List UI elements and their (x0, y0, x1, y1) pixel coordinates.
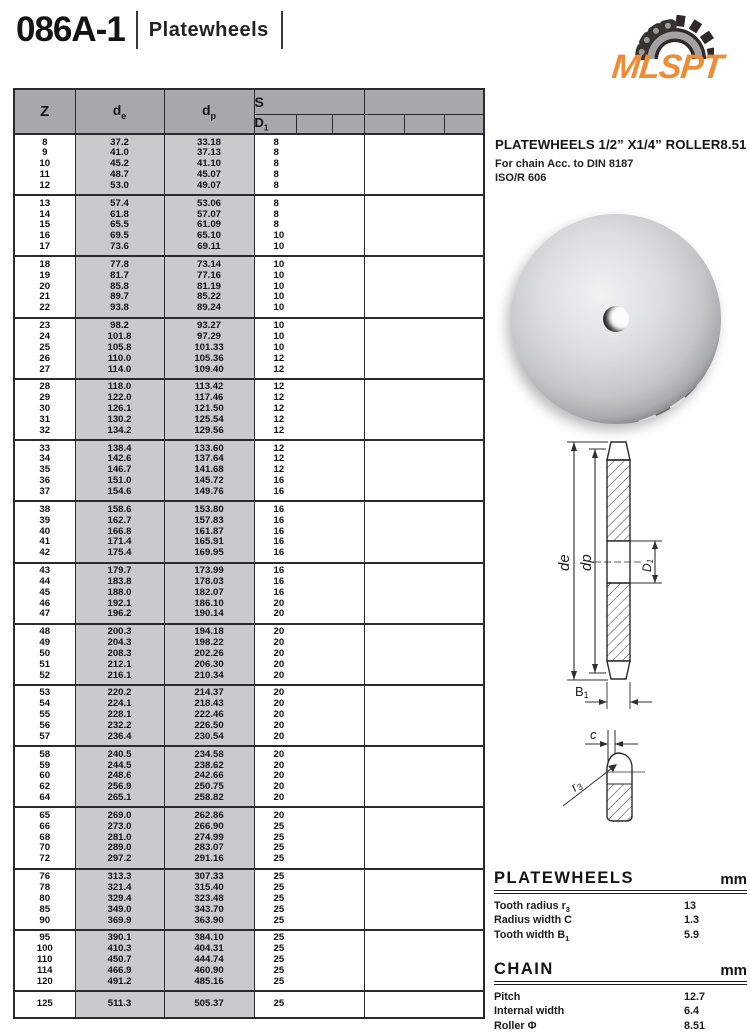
dimension-table: Z de dp S D1 8910111237.241.045.248.753.… (13, 88, 485, 1019)
cell-z: 95100110114120 (14, 930, 75, 991)
table-group-row: 4849505152200.3204.3208.3212.1216.1194.1… (14, 624, 484, 685)
brand-logo: MLSPT (598, 4, 748, 90)
chain-spec-rows: Pitch 12.7 Internal width 6.4 Roller Φ 8… (494, 992, 747, 1035)
cell-de: 313.3321.4329.4349.0369.9 (75, 869, 164, 930)
chain-spec-unit: mm (720, 962, 747, 979)
spec-tables: PLATEWHEELS mm Tooth radius r3 13 Radius… (494, 869, 747, 1036)
cell-blank (364, 379, 484, 440)
cell-dp: 262.86266.90274.99283.07291.16 (164, 807, 254, 868)
table-group-row: 3334353637138.4142.6146.7151.0154.6133.6… (14, 440, 484, 501)
cell-blank (364, 746, 484, 807)
cell-d1: 8881010 (254, 195, 364, 256)
cell-blank (364, 501, 484, 562)
table-group-row: 2829303132118.0122.0126.1130.2134.2113.4… (14, 379, 484, 440)
section-top-tooth (607, 442, 630, 460)
cell-de: 138.4142.6146.7151.0154.6 (75, 440, 164, 501)
table-group-row: 7678808590313.3321.4329.4349.0369.9307.3… (14, 869, 484, 930)
platewheels-spec-header: PLATEWHEELS mm (494, 869, 747, 894)
cell-dp: 214.37218.43222.46226.50230.54 (164, 685, 254, 746)
chain-spec-header: CHAIN mm (494, 960, 747, 985)
cell-de: 179.7183.8188.0192.1196.2 (75, 563, 164, 624)
cell-d1: 25 (254, 991, 364, 1018)
sprocket-bore (603, 306, 629, 332)
col-header-dp: dp (164, 89, 254, 134)
label-de: de (556, 554, 573, 571)
cell-blank (364, 807, 484, 868)
col-header-de: de (75, 89, 164, 134)
product-iso: ISO/R 606 (495, 172, 546, 184)
cell-z: 125 (14, 991, 75, 1018)
cell-de: 37.241.045.248.753.0 (75, 134, 164, 195)
cell-de: 511.3 (75, 991, 164, 1018)
label-dp: dp (578, 554, 595, 571)
spec-row: Internal width 6.4 (494, 1006, 747, 1020)
page-title: 086A-1 (16, 10, 125, 50)
cell-blank (364, 624, 484, 685)
table-group-row: 5354555657220.2224.1228.1232.2236.4214.3… (14, 685, 484, 746)
col-header-blank (332, 114, 364, 134)
cell-z: 5859606264 (14, 746, 75, 807)
cell-z: 4849505152 (14, 624, 75, 685)
page-subtitle: Platewheels (149, 19, 269, 42)
table-group-row: 131415161757.461.865.569.573.653.0657.07… (14, 195, 484, 256)
cell-d1: 2525252525 (254, 930, 364, 991)
col-header-s: S (254, 89, 364, 114)
cell-blank (364, 563, 484, 624)
table-body: 8910111237.241.045.248.753.033.1837.1341… (14, 134, 484, 1018)
page-header: 086A-1 Platewheels (16, 10, 294, 50)
col-header-z: Z (14, 89, 75, 134)
table-group-row: 232425262798.2101.8105.8110.0114.093.279… (14, 318, 484, 379)
cell-z: 2829303132 (14, 379, 75, 440)
platewheels-spec-rows: Tooth radius r3 13 Radius width C 1.3 To… (494, 901, 747, 944)
spec-row: Radius width C 1.3 (494, 915, 747, 929)
col-header-blank (364, 114, 404, 134)
cell-de: 98.2101.8105.8110.0114.0 (75, 318, 164, 379)
label-r3: r3 (568, 777, 585, 795)
sprocket-photo (508, 214, 734, 426)
spec-row: Tooth radius r3 13 (494, 901, 747, 915)
cell-de: 118.0122.0126.1130.2134.2 (75, 379, 164, 440)
section-upper-hatch (607, 460, 630, 541)
product-standard: For chain Acc. to DIN 8187 (495, 158, 633, 170)
cell-de: 269.0273.0281.0289.0297.2 (75, 807, 164, 868)
cell-d1: 1616162020 (254, 563, 364, 624)
spec-row: Roller Φ 8.51 (494, 1021, 747, 1035)
product-headline: PLATEWHEELS 1/2” X1/4” ROLLER8.51 (495, 137, 750, 152)
cell-z: 1819202122 (14, 256, 75, 317)
spec-row: Pitch 12.7 (494, 992, 747, 1006)
cell-d1: 1212121212 (254, 379, 364, 440)
cell-dp: 33.1837.1341.1045.0749.07 (164, 134, 254, 195)
cell-dp: 133.60137.64141.68145.72149.76 (164, 440, 254, 501)
table-group-row: 181920212277.881.785.889.793.873.1477.16… (14, 256, 484, 317)
col-header-blank (444, 114, 484, 134)
cell-blank (364, 195, 484, 256)
table-group-row: 95100110114120390.1410.3450.7466.9491.23… (14, 930, 484, 991)
section-bottom-tooth (607, 661, 630, 679)
cell-z: 7678808590 (14, 869, 75, 930)
cell-blank (364, 685, 484, 746)
cell-d1: 2020202020 (254, 624, 364, 685)
logo-wordmark: MLSPT (610, 48, 724, 87)
label-d1: D1 (640, 559, 655, 572)
label-b1: B1 (575, 684, 589, 700)
table-group-row: 6566687072269.0273.0281.0289.0297.2262.8… (14, 807, 484, 868)
cell-dp: 194.18198.22202.26206.30210.34 (164, 624, 254, 685)
cell-z: 1314151617 (14, 195, 75, 256)
cell-de: 200.3204.3208.3212.1216.1 (75, 624, 164, 685)
cell-de: 240.5244.5248.6256.9265.1 (75, 746, 164, 807)
cell-de: 158.6162.7166.8171.4175.4 (75, 501, 164, 562)
platewheels-spec-title: PLATEWHEELS (494, 869, 634, 888)
cell-d1: 1010101212 (254, 318, 364, 379)
label-c: c (590, 727, 597, 742)
cell-de: 57.461.865.569.573.6 (75, 195, 164, 256)
cell-z: 3839404142 (14, 501, 75, 562)
cell-d1: 1010101010 (254, 256, 364, 317)
cell-blank (364, 440, 484, 501)
cell-d1: 2525252525 (254, 869, 364, 930)
cell-d1: 2025252525 (254, 807, 364, 868)
cell-blank (364, 256, 484, 317)
spec-row: Tooth width B1 5.9 (494, 930, 747, 944)
table-group-row: 8910111237.241.045.248.753.033.1837.1341… (14, 134, 484, 195)
cell-dp: 113.42117.46121.50125.54129.56 (164, 379, 254, 440)
table-group-row: 3839404142158.6162.7166.8171.4175.4153.8… (14, 501, 484, 562)
cell-de: 390.1410.3450.7466.9491.2 (75, 930, 164, 991)
cell-dp: 53.0657.0761.0965.1069.11 (164, 195, 254, 256)
cell-z: 6566687072 (14, 807, 75, 868)
cell-d1: 2020202020 (254, 685, 364, 746)
cell-dp: 93.2797.29101.33105.36109.40 (164, 318, 254, 379)
cell-d1: 1212121616 (254, 440, 364, 501)
cell-dp: 505.37 (164, 991, 254, 1018)
col-header-blank (296, 114, 332, 134)
col-header-blank (404, 114, 444, 134)
table-group-row: 4344454647179.7183.8188.0192.1196.2173.9… (14, 563, 484, 624)
col-header-blank-group (364, 89, 484, 114)
cell-dp: 234.58238.62242.66250.75258.82 (164, 746, 254, 807)
header-row-1: Z de dp S (14, 89, 484, 114)
cell-blank (364, 134, 484, 195)
cell-z: 5354555657 (14, 685, 75, 746)
cell-d1: 88888 (254, 134, 364, 195)
cell-z: 3334353637 (14, 440, 75, 501)
title-divider-2 (281, 11, 283, 49)
cell-z: 89101112 (14, 134, 75, 195)
cell-dp: 173.99178.03182.07186.10190.14 (164, 563, 254, 624)
cell-dp: 153.80157.83161.87165.91169.95 (164, 501, 254, 562)
cell-dp: 384.10404.31444.74460.90485.16 (164, 930, 254, 991)
title-divider (136, 11, 138, 49)
table-group-row: 5859606264240.5244.5248.6256.9265.1234.5… (14, 746, 484, 807)
cell-z: 2324252627 (14, 318, 75, 379)
cell-de: 77.881.785.889.793.8 (75, 256, 164, 317)
cell-d1: 2020202020 (254, 746, 364, 807)
cell-blank (364, 991, 484, 1018)
catalog-page: 086A-1 Platewheels MLSPT (0, 0, 750, 1036)
sprocket-image (511, 214, 721, 424)
tooth-profile-drawing: c r3 (553, 726, 750, 858)
cell-dp: 307.33315.40323.48343.70363.90 (164, 869, 254, 930)
cell-dp: 73.1477.1681.1985.2289.24 (164, 256, 254, 317)
table-group-row: 125511.3505.3725 (14, 991, 484, 1018)
cross-section-drawing: de dp D1 B1 (538, 428, 750, 730)
cell-de: 220.2224.1228.1232.2236.4 (75, 685, 164, 746)
cell-z: 4344454647 (14, 563, 75, 624)
col-header-d1: D1 (254, 114, 296, 134)
section-lower-hatch (607, 583, 630, 661)
cell-blank (364, 930, 484, 991)
tooth-hatch (607, 784, 632, 821)
cell-d1: 1616161616 (254, 501, 364, 562)
cell-blank (364, 869, 484, 930)
cell-blank (364, 318, 484, 379)
chain-spec-title: CHAIN (494, 960, 554, 979)
platewheels-spec-unit: mm (720, 871, 747, 888)
